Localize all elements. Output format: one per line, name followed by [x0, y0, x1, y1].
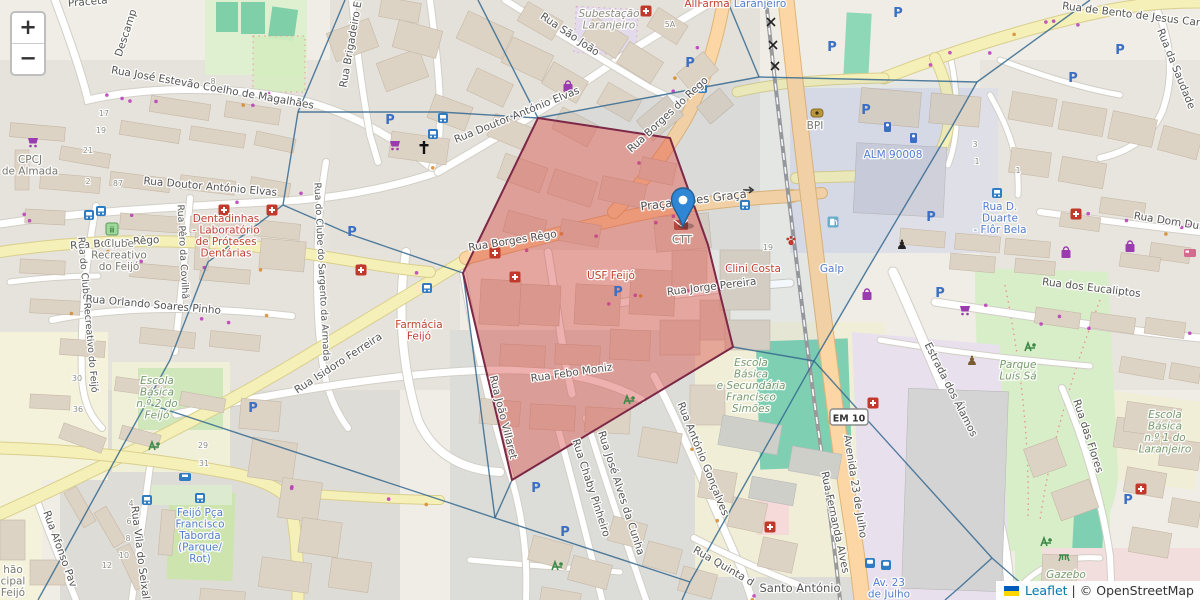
- street-label: Descamp: [113, 8, 140, 59]
- bus-stop-icon: [195, 493, 205, 503]
- parking-icon: P: [560, 525, 570, 540]
- poi-label: Dentadinhas- Laboratóriode PrótesesDentá…: [192, 213, 259, 260]
- street-label: Rua Vila do Seixal: [128, 505, 151, 600]
- svg-text:P: P: [827, 40, 837, 55]
- boundary-line: [495, 480, 512, 518]
- poi-label: EscolaBásicae SecundáriaFranciscoSimões: [717, 357, 786, 415]
- svg-text:P: P: [613, 285, 623, 300]
- house-number: 31: [199, 459, 209, 468]
- bus-stop-icon: [142, 495, 152, 505]
- house-number: 30: [72, 374, 82, 383]
- playground-icon: [552, 562, 563, 570]
- parking-icon: P: [827, 40, 837, 55]
- house-number: 19: [96, 126, 106, 135]
- poi-label: ALM 90008: [864, 149, 923, 161]
- svg-text:P: P: [1068, 71, 1078, 86]
- bus-stop-icon: [992, 188, 1002, 198]
- bank-icon: [811, 109, 823, 117]
- house-number: 21: [83, 146, 93, 155]
- boundary-line: [727, 0, 759, 77]
- svg-text:P: P: [248, 401, 258, 416]
- house-number: 6: [126, 517, 131, 526]
- parking-icon: P: [1123, 493, 1133, 508]
- boundary-line: [478, 0, 538, 118]
- parking-icon: P: [926, 210, 936, 225]
- street-label: Rua Pêro da Covilhã: [175, 204, 191, 299]
- parking-icon: P: [385, 113, 395, 128]
- shopping-cart-icon: [390, 141, 400, 150]
- poi-label: CPCJde Almada: [2, 154, 58, 178]
- parking-icon: P: [685, 56, 695, 71]
- hospital-cross-icon: [765, 522, 776, 533]
- map-overlays[interactable]: PPPPPPPPPPPPPPP♟♟iiPracetaDescampRua Jos…: [0, 0, 1200, 600]
- poi-label: BPI: [807, 120, 824, 132]
- parking-meter-icon: [884, 122, 891, 132]
- taxi-icon: [179, 473, 191, 481]
- house-number: 4: [128, 499, 133, 508]
- svg-text:ii: ii: [110, 226, 114, 235]
- svg-text:P: P: [1115, 43, 1125, 58]
- boundary-line: [495, 518, 690, 582]
- playground-icon: [1041, 538, 1052, 546]
- street-label: Rua Quinta d: [691, 544, 756, 589]
- hospital-cross-icon: [1136, 484, 1147, 495]
- svg-text:P: P: [685, 56, 695, 71]
- playground-icon: [149, 442, 160, 450]
- poi-label: Gazebo: [1046, 569, 1086, 581]
- bus-stop-icon: [96, 206, 106, 216]
- bus-stop-icon: [422, 283, 432, 293]
- fuel-icon: [828, 217, 839, 228]
- street-label: Santo António: [759, 581, 840, 595]
- poi-label: Clini Costa: [725, 263, 781, 275]
- leaflet-link[interactable]: Leaflet: [1025, 583, 1068, 598]
- statue-brown-icon: ♟: [966, 354, 978, 369]
- attribution-separator: |: [1072, 583, 1076, 598]
- leaflet-map[interactable]: PPPPPPPPPPPPPPP♟♟iiPracetaDescampRua Jos…: [0, 0, 1200, 600]
- house-number: 1: [974, 157, 979, 166]
- parking-icon: P: [531, 481, 541, 496]
- road-ref-text: EM 10: [833, 414, 866, 425]
- house-number: 19: [763, 243, 773, 252]
- svg-text:P: P: [935, 286, 945, 301]
- bus-stop-icon: [84, 210, 94, 220]
- poi-label: USF Feijó: [587, 270, 635, 282]
- street-label: Rua das Flores: [1070, 398, 1105, 475]
- house-number: 29: [198, 441, 208, 450]
- svg-text:P: P: [1123, 493, 1133, 508]
- shopping-bag-icon: [1126, 241, 1135, 252]
- svg-text:♟: ♟: [966, 354, 978, 369]
- house-number: 3: [972, 140, 977, 149]
- house-number: 8: [210, 77, 215, 86]
- poi-label: EscolaBásican.º 1 doLaranjeiro: [1139, 409, 1192, 456]
- poi-label: ParqueLuís Sá: [999, 359, 1036, 383]
- street-label: Praceta: [67, 0, 108, 10]
- hospital-cross-icon: [641, 6, 652, 17]
- parking-icon: P: [1115, 43, 1125, 58]
- street-label: Rua Isidoro Ferreira: [292, 331, 384, 397]
- bed-icon: [1184, 249, 1196, 257]
- poi-label: SubestaçãoLaranjeiro: [578, 8, 639, 32]
- house-number: 2: [85, 177, 90, 186]
- parking-icon: P: [248, 401, 258, 416]
- street-label: Rua da Saudade: [1154, 27, 1197, 111]
- parking-icon: P: [861, 103, 871, 118]
- poi-label: EscolaBásican.º 2 doFeijó: [136, 375, 177, 422]
- poi-label: FarmáciaFeijó: [395, 319, 442, 343]
- street-label: Rua José Estevão Coelho de Magalhães: [110, 64, 315, 112]
- parking-icon: P: [613, 285, 623, 300]
- svg-text:P: P: [560, 525, 570, 540]
- shopping-cart-icon: [28, 138, 38, 147]
- playground-icon: [1025, 343, 1036, 351]
- hospital-cross-icon: [868, 398, 879, 409]
- poi-label: hãocipalFeijó: [1, 564, 26, 599]
- svg-text:♟: ♟: [896, 238, 908, 253]
- poi-label: Laranjeiro: [734, 0, 787, 10]
- svg-text:P: P: [347, 225, 357, 240]
- boundary-line: [945, 558, 992, 600]
- ukraine-flag-icon: [1004, 586, 1019, 596]
- street-label: Avenida 23 de Julho: [841, 434, 869, 539]
- bus-stop-icon: [740, 200, 750, 210]
- house-number: 1: [1015, 166, 1020, 175]
- house-number: 17: [99, 109, 109, 118]
- zoom-out-button[interactable]: −: [12, 44, 44, 74]
- parking-icon: P: [1068, 71, 1078, 86]
- street-label: Rua Orlando Soares Pinho: [85, 293, 221, 317]
- bus-stop-icon: [438, 113, 448, 123]
- hospital-cross-icon: [267, 205, 278, 216]
- street-label: Rua Dom Du: [1133, 210, 1200, 232]
- zoom-in-button[interactable]: +: [12, 13, 44, 44]
- parking-icon: P: [347, 225, 357, 240]
- house-number: 12: [102, 561, 112, 570]
- church-icon: [420, 141, 429, 154]
- train-station-icon: [865, 558, 875, 568]
- zoom-control: + −: [10, 11, 46, 76]
- parking-icon: P: [893, 6, 903, 21]
- street-label: Rua Fernanda Alves: [818, 470, 851, 574]
- attribution-bar: Leaflet | © OpenStreetMap: [996, 581, 1200, 600]
- shopping-bag-icon: [1062, 247, 1071, 258]
- street-label: Rua Doutor António Elvas: [143, 175, 278, 199]
- poi-label: Galp: [820, 263, 844, 275]
- street-label: Rua do Clube do Sargento da Armada: [311, 182, 331, 361]
- house-number: 8: [125, 534, 130, 543]
- club-icon: ii: [106, 223, 118, 235]
- poi-label: CTT: [672, 234, 693, 246]
- poi-label: AllFarma: [684, 0, 729, 10]
- svg-text:P: P: [861, 103, 871, 118]
- osm-attribution[interactable]: © OpenStreetMap: [1080, 583, 1194, 598]
- picnic-icon: [1059, 555, 1069, 561]
- svg-text:P: P: [385, 113, 395, 128]
- poi-label: Av. 23de Julho: [868, 577, 910, 600]
- house-number: 10: [119, 551, 129, 560]
- street-label: Rua de Bento de Jesus Cara: [1061, 0, 1200, 30]
- house-number: 36: [73, 405, 83, 414]
- parking-meter-icon: [910, 133, 917, 143]
- street-label: Rua Brigadeiro E: [338, 0, 365, 88]
- hospital-cross-icon: [510, 272, 521, 283]
- street-label: Rua Afonso Pav: [40, 509, 79, 589]
- house-number: 87: [113, 179, 123, 188]
- parking-icon: P: [935, 286, 945, 301]
- hospital-cross-icon: [1071, 209, 1082, 220]
- shopping-cart-icon: [960, 306, 970, 315]
- hospital-cross-icon: [356, 265, 367, 276]
- boundary-line: [283, 205, 463, 273]
- house-number: 5A: [665, 20, 676, 29]
- shopping-bag-icon: [863, 289, 872, 300]
- svg-text:P: P: [926, 210, 936, 225]
- svg-text:P: P: [893, 6, 903, 21]
- svg-text:P: P: [531, 481, 541, 496]
- poi-label: Rua D.Duarte- Flôr Bela: [973, 201, 1026, 236]
- bus-stop-icon: [428, 129, 438, 139]
- poi-label: Feijó PçaFranciscoTaborda(Parque/Rot): [175, 507, 224, 565]
- street-label: Rua dos Eucaliptos: [1041, 276, 1141, 300]
- train-station-icon: [881, 560, 891, 570]
- statue-icon: ♟: [896, 238, 908, 253]
- street-label: Rua António Gonçalves: [674, 400, 731, 517]
